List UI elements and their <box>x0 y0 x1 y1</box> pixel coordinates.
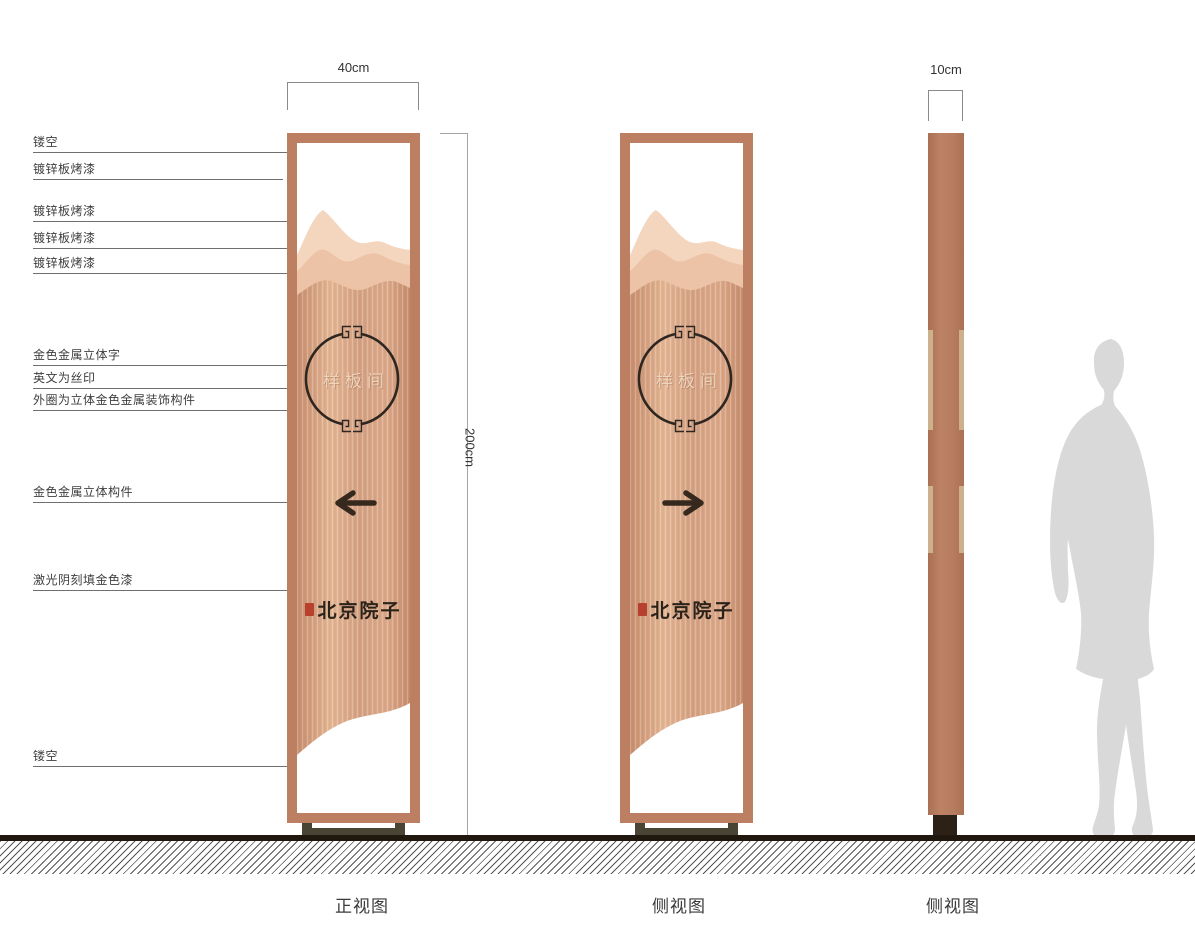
brand-logo: 北京院子 <box>630 596 743 623</box>
red-seal-icon <box>638 603 647 616</box>
red-seal-icon <box>305 603 314 616</box>
sign-back-artwork <box>630 143 743 813</box>
view-title-front: 正视图 <box>335 892 389 917</box>
callout-label: 金色金属立体字 <box>33 346 121 363</box>
dimension-bracket-front <box>287 82 419 110</box>
sign-front-artwork <box>297 143 410 813</box>
signage-design-drawing: 镂空 镀锌板烤漆 镀锌板烤漆 镀锌板烤漆 镀锌板烤漆 金色金属立体字 英文为丝印… <box>0 0 1195 927</box>
callout-outer-ring: 外圈为立体金色金属装饰构件 <box>33 393 311 411</box>
side-protrusion-strip <box>959 486 964 553</box>
callout-hollow-bottom: 镂空 <box>33 749 303 767</box>
dimension-side-depth: 10cm <box>920 62 972 77</box>
view-title-side-1: 侧视图 <box>652 892 706 917</box>
brand-logo-text: 北京院子 <box>317 596 401 623</box>
dimension-bracket-side <box>928 90 963 121</box>
room-name-text: 样板间 <box>297 367 410 392</box>
callout-label: 镀锌板烤漆 <box>33 229 96 246</box>
callout-label: 金色金属立体构件 <box>33 483 133 500</box>
callout-label: 镀锌板烤漆 <box>33 160 96 177</box>
arrow-right-icon <box>662 489 710 517</box>
side-protrusion-strip <box>928 486 933 553</box>
callout-label: 镀锌板烤漆 <box>33 254 96 271</box>
callout-galvanized-4: 镀锌板烤漆 <box>33 256 293 274</box>
brand-logo-text: 北京院子 <box>650 596 734 623</box>
dimension-line-height <box>467 133 468 838</box>
callout-label: 镂空 <box>33 747 58 764</box>
dimension-tick-height <box>440 133 467 134</box>
dimension-height: 200cm <box>463 418 478 478</box>
sign-side-profile <box>928 133 964 815</box>
sign-back-panel: 样板间 北京院子 <box>630 143 743 813</box>
ground-hatch-pattern <box>0 841 1195 874</box>
callout-hollow-top: 镂空 <box>33 135 306 153</box>
callout-galvanized-3: 镀锌板烤漆 <box>33 231 293 249</box>
callout-label: 镂空 <box>33 133 58 150</box>
arrow-left-icon <box>329 489 377 517</box>
callout-label: 英文为丝印 <box>33 369 96 386</box>
brand-logo: 北京院子 <box>297 596 410 623</box>
room-name-text: 样板间 <box>630 367 743 392</box>
sign-front-view: 样板间 北京院子 <box>287 133 420 823</box>
callout-label: 外圈为立体金色金属装饰构件 <box>33 391 196 408</box>
side-protrusion-strip <box>928 330 933 430</box>
sign-back-view: 样板间 北京院子 <box>620 133 753 823</box>
callout-galvanized-2: 镀锌板烤漆 <box>33 204 324 222</box>
callout-label: 激光阴刻填金色漆 <box>33 571 133 588</box>
callout-galvanized-1: 镀锌板烤漆 <box>33 162 283 180</box>
dimension-front-width: 40cm <box>287 60 420 75</box>
sign-front-panel: 样板间 北京院子 <box>297 143 410 813</box>
side-protrusion-strip <box>959 330 964 430</box>
callout-label: 镀锌板烤漆 <box>33 202 96 219</box>
view-title-side-2: 侧视图 <box>926 892 980 917</box>
human-scale-silhouette <box>1035 335 1175 840</box>
